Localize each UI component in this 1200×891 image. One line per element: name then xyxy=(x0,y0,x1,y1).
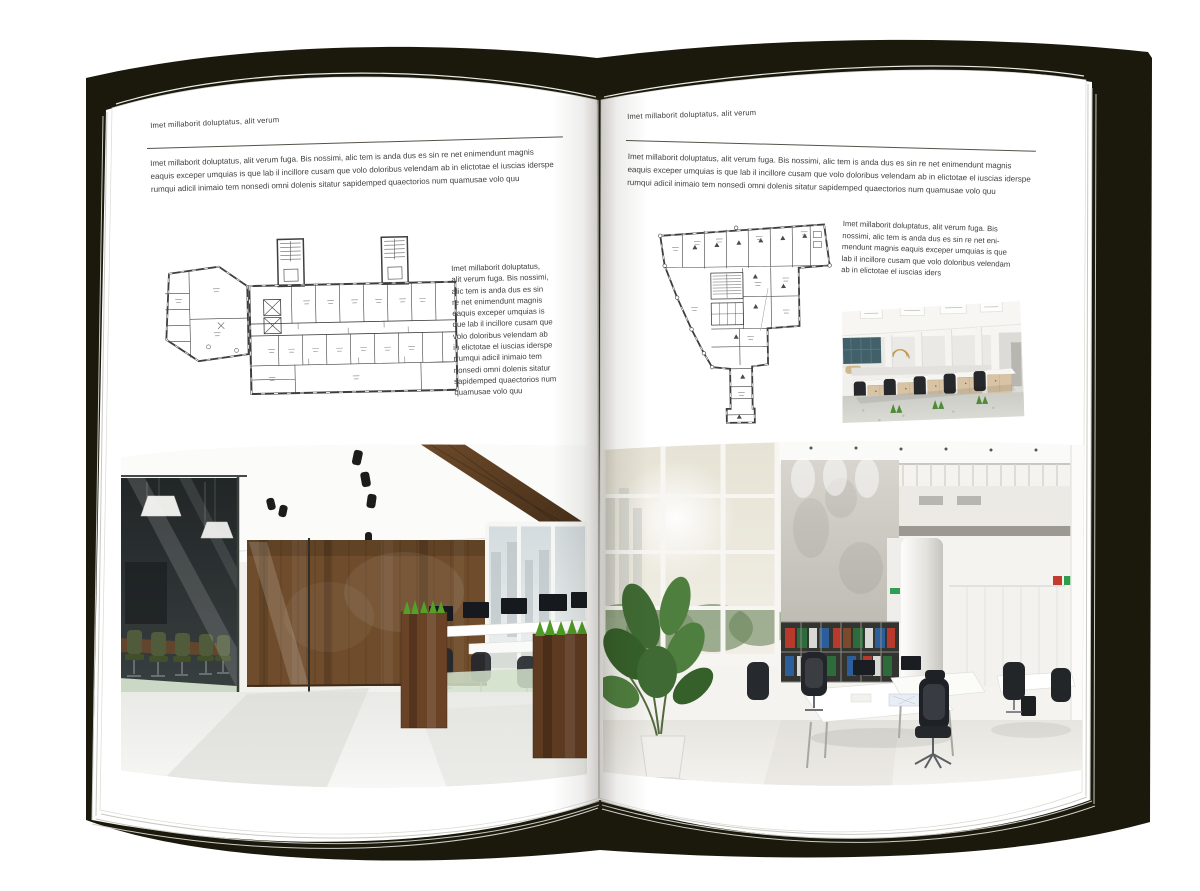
book-spread-mockup: Imet millaborit doluptatus, alit verum I… xyxy=(0,0,1200,891)
left-page-header: Imet millaborit doluptatus, alit verum xyxy=(150,115,279,130)
right-header-rule xyxy=(626,140,1036,152)
left-intro-paragraph: Imet millaborit doluptatus, alit verum f… xyxy=(150,145,554,197)
floor-plan-left xyxy=(156,222,462,420)
right-intro-paragraph: Imet millaborit doluptatus, alit verum f… xyxy=(627,150,1031,199)
floor-plan-right xyxy=(646,215,845,430)
office-photo-right xyxy=(601,438,1095,794)
right-page-header: Imet millaborit doluptatus, alit verum xyxy=(627,108,756,121)
binder-shelves xyxy=(781,622,899,682)
right-side-text: Imet millaborit doluptatus, alit verum f… xyxy=(841,218,1012,282)
office-photo-small xyxy=(840,298,1025,426)
office-photo-left xyxy=(119,442,589,794)
left-side-text: Imet millaborit doluptatus, alit verum f… xyxy=(451,260,557,398)
